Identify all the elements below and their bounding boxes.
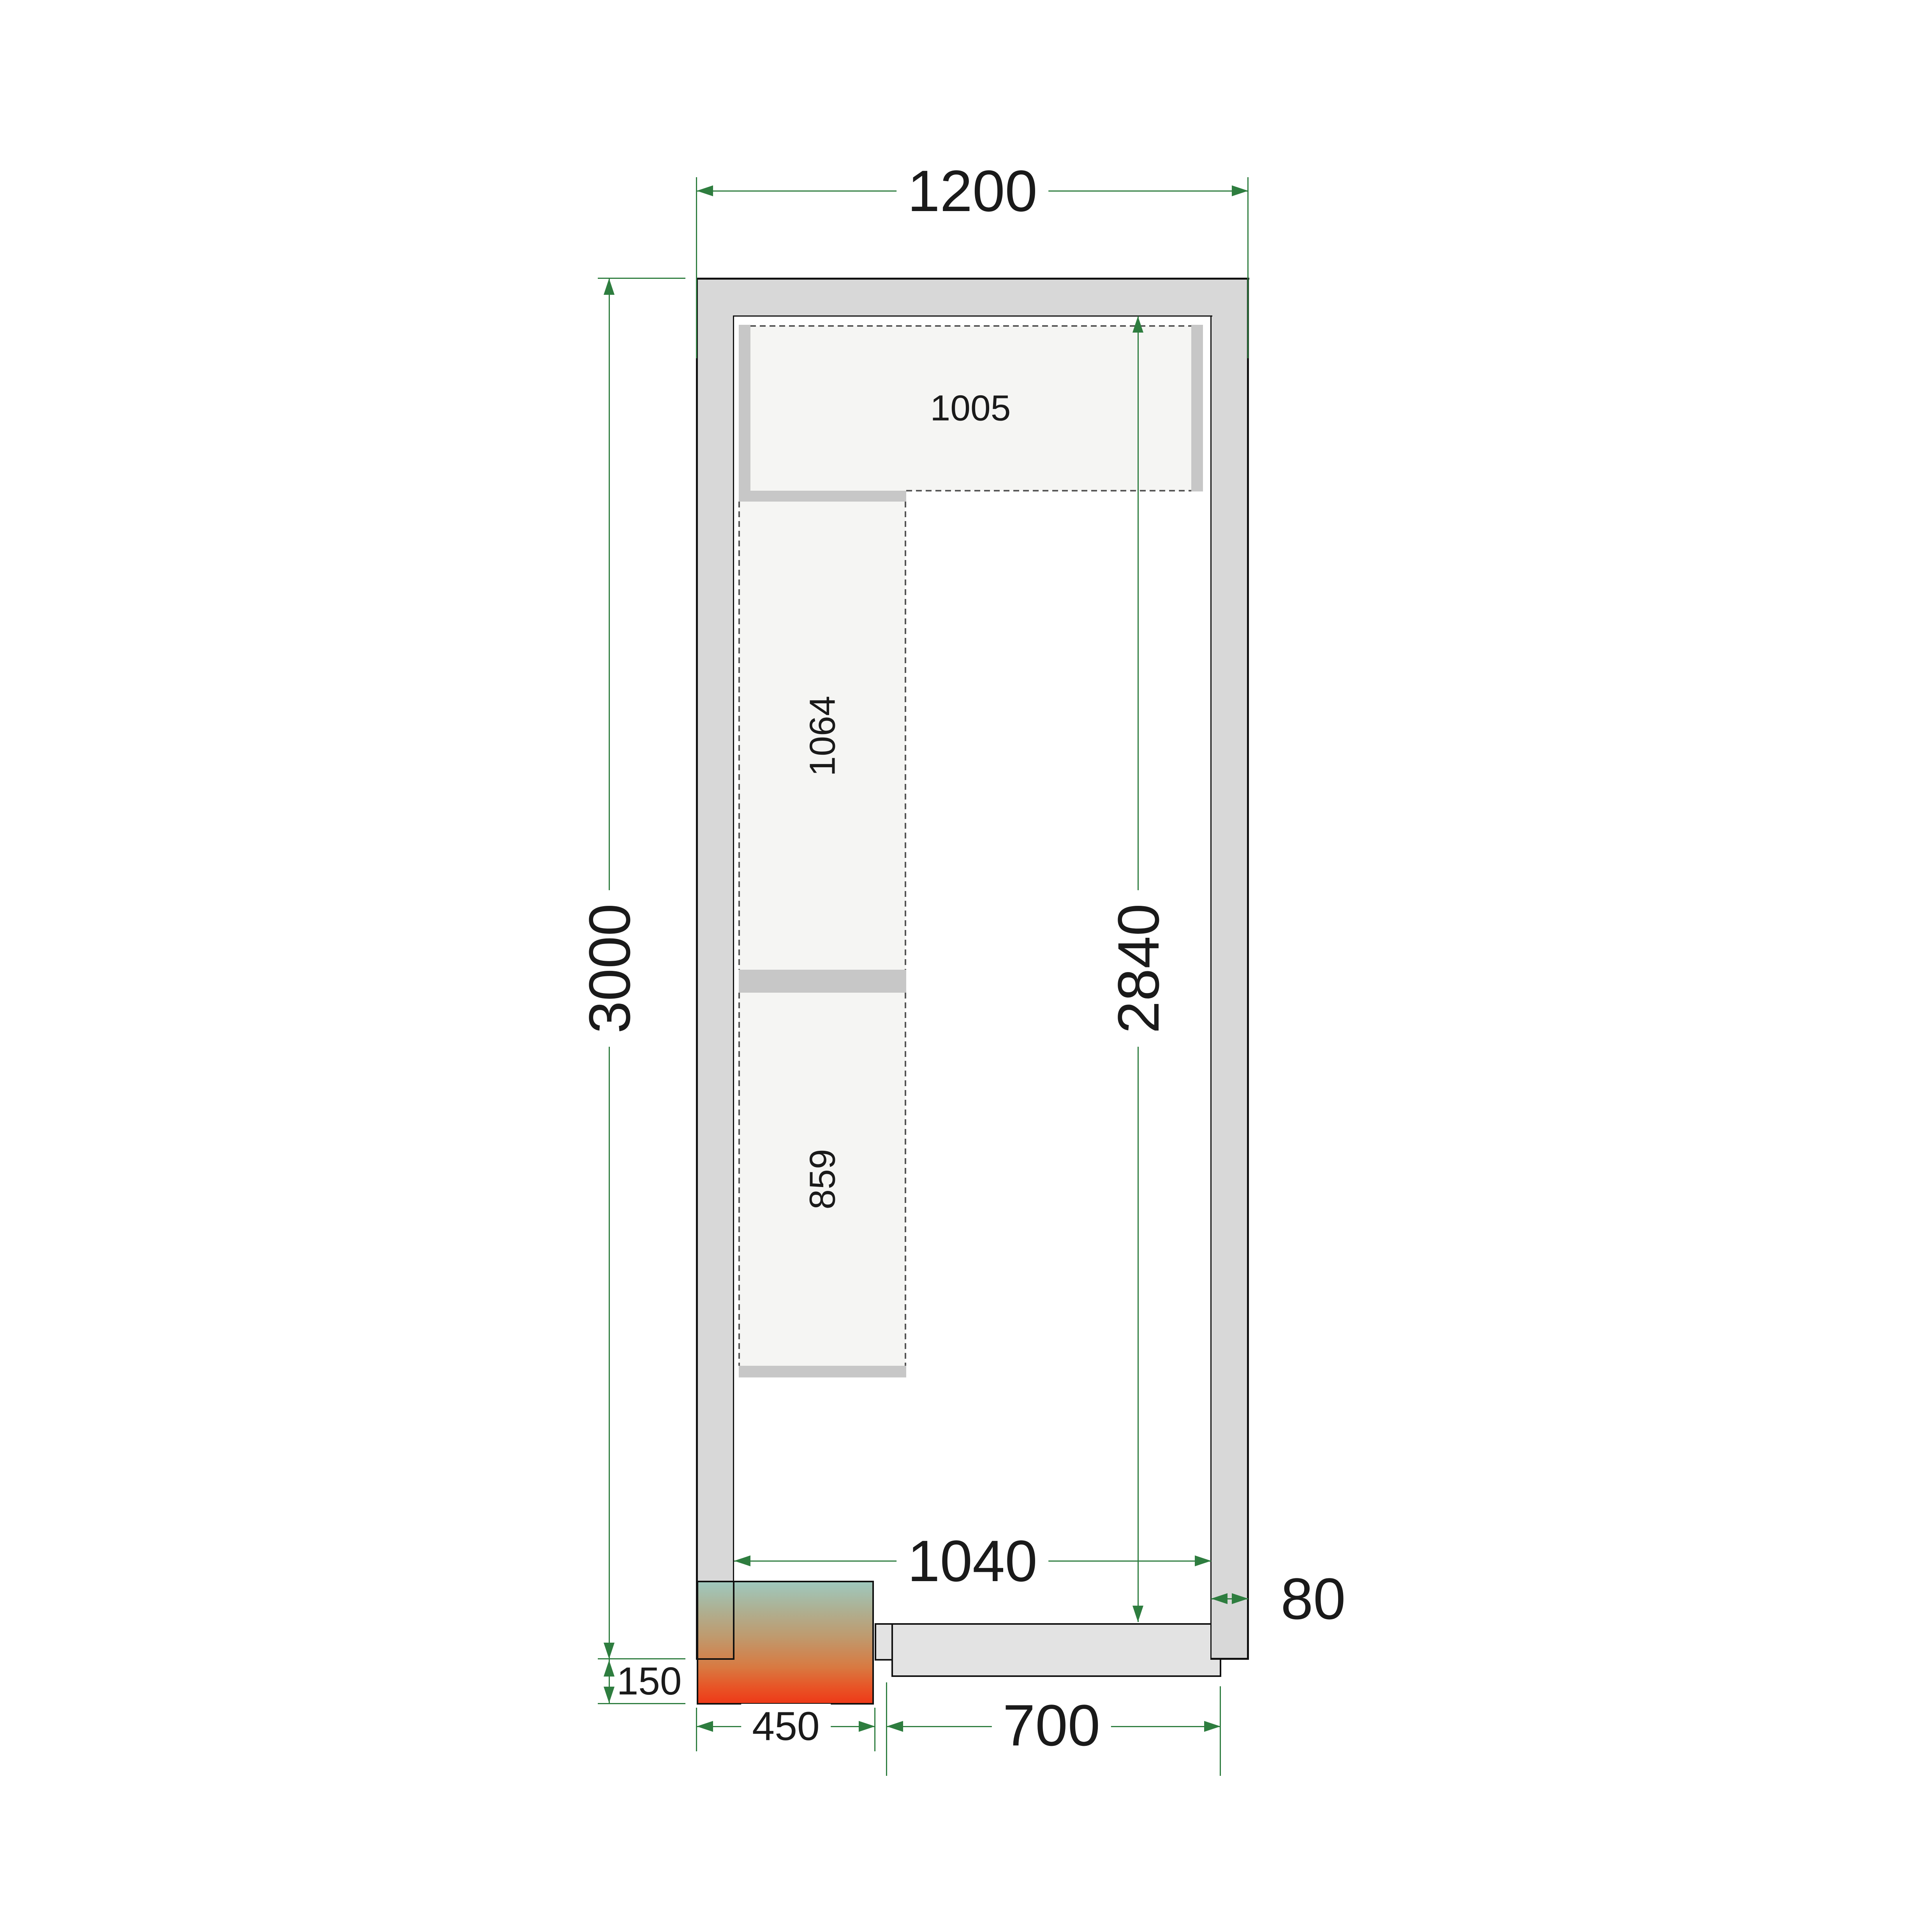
dim-inner-width-label: 1040	[896, 1529, 1048, 1592]
dim-door-width-label: 700	[992, 1694, 1111, 1757]
dim-1040-arrow-right	[1195, 1555, 1211, 1566]
left-shelf-support-bottom	[739, 1366, 906, 1377]
dim-700-arrow-right	[1204, 1721, 1220, 1732]
dim-1200-ext-right	[1247, 177, 1249, 358]
wall-left	[697, 278, 734, 1659]
left-shelf-dashed-left-upper	[738, 502, 740, 970]
wall-outline-bottom-right	[1210, 1658, 1248, 1660]
dim-450-arrow-left	[697, 1721, 713, 1732]
wall-outline-top	[697, 278, 1249, 280]
wall-over-unit-horizontal	[697, 1658, 734, 1660]
dim-150-arrow-up	[604, 1660, 615, 1677]
wall-top	[697, 278, 1248, 315]
wall-over-unit-vertical	[733, 1581, 734, 1660]
top-shelf-support-right	[1191, 325, 1203, 491]
left-shelf-support-middle	[739, 970, 906, 993]
left-shelf	[739, 502, 905, 1366]
dim-wall-thickness-label: 80	[1281, 1569, 1346, 1628]
top-shelf-dashed-top	[750, 325, 1191, 327]
dim-150-tick-bottom	[598, 1703, 685, 1704]
dim-1200-arrow-left	[697, 185, 713, 196]
door-leaf	[891, 1623, 1221, 1677]
top-shelf-support-left	[739, 325, 750, 491]
dim-inner-depth-label: 2840	[1107, 890, 1170, 1047]
wall-inner-line-left	[733, 315, 734, 1659]
left-shelf-dashed-right-upper	[905, 502, 906, 970]
dim-outer-depth-label: 3000	[578, 890, 641, 1047]
left-shelf-support-top	[739, 491, 906, 502]
dim-3000-arrow-up	[604, 278, 615, 295]
wall-outline-right	[1247, 278, 1249, 1660]
cooling-unit	[697, 1581, 874, 1705]
dim-outer-width-label: 1200	[896, 159, 1048, 222]
dim-2840-arrow-up	[1132, 316, 1143, 333]
wall-right	[1211, 278, 1248, 1659]
door-frame-step	[875, 1623, 893, 1661]
dim-2840-arrow-down	[1132, 1606, 1143, 1622]
dim-700-arrow-left	[887, 1721, 903, 1732]
wall-outline-left	[696, 278, 698, 1660]
dim-3000-arrow-down	[604, 1643, 615, 1659]
dim-450-arrow-right	[859, 1721, 875, 1732]
dim-80-arrow-left	[1211, 1593, 1228, 1604]
left-shelf-dashed-left-lower	[738, 993, 740, 1366]
dim-1040-arrow-left	[734, 1555, 750, 1566]
dim-1200-arrow-right	[1232, 185, 1248, 196]
left-shelf-dashed-right-lower	[905, 993, 906, 1366]
dim-80-arrow-right	[1232, 1593, 1248, 1604]
top-shelf-label: 1005	[930, 390, 1011, 426]
dim-unit-width-label: 450	[741, 1704, 831, 1749]
top-shelf-dashed-bottom	[906, 490, 1191, 491]
left-shelf-upper-label: 1064	[805, 696, 841, 777]
wall-inner-line-right	[1210, 315, 1212, 1659]
floor-plan-diagram: 1005 1064 859 1200 3000 2840 1040 80 150	[0, 0, 1932, 1932]
dim-unit-protrusion-label: 150	[617, 1662, 682, 1701]
left-shelf-lower-label: 859	[805, 1149, 841, 1209]
dim-1200-ext-left	[696, 177, 697, 358]
dim-150-arrow-down	[604, 1687, 615, 1703]
